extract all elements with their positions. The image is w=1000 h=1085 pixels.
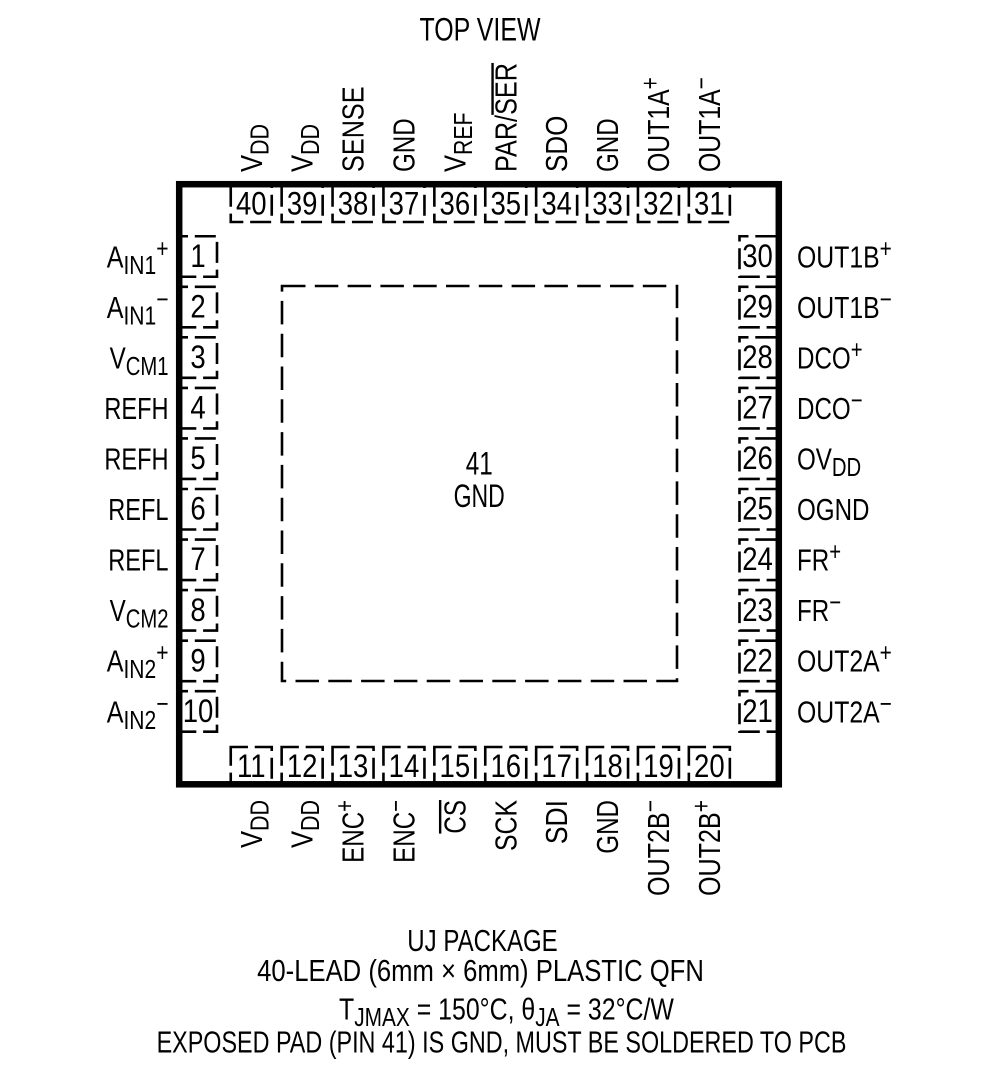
svg-text:19: 19 xyxy=(643,749,674,784)
svg-text:OUT2A−: OUT2A− xyxy=(797,689,892,729)
svg-text:28: 28 xyxy=(742,340,773,375)
svg-text:4: 4 xyxy=(190,391,205,426)
svg-text:12: 12 xyxy=(287,749,318,784)
svg-text:REFH: REFH xyxy=(104,391,168,426)
svg-text:21: 21 xyxy=(742,694,773,729)
svg-text:33: 33 xyxy=(592,187,623,222)
svg-text:13: 13 xyxy=(338,749,369,784)
svg-text:GND: GND xyxy=(590,800,625,854)
svg-text:1: 1 xyxy=(190,239,205,274)
svg-text:REFL: REFL xyxy=(108,542,168,577)
svg-text:23: 23 xyxy=(742,593,773,628)
svg-text:OUT2B−: OUT2B− xyxy=(637,800,676,896)
svg-text:2: 2 xyxy=(190,290,205,325)
svg-text:REFL: REFL xyxy=(108,492,168,527)
svg-text:SDI: SDI xyxy=(540,800,574,844)
svg-text:26: 26 xyxy=(742,441,773,476)
svg-text:5: 5 xyxy=(190,441,205,476)
svg-text:16: 16 xyxy=(490,749,521,784)
svg-text:EXPOSED PAD (PIN 41) IS GND, M: EXPOSED PAD (PIN 41) IS GND, MUST BE SOL… xyxy=(157,1024,847,1059)
svg-text:40: 40 xyxy=(236,187,267,222)
svg-text:9: 9 xyxy=(190,643,205,678)
svg-text:GND: GND xyxy=(454,478,505,514)
svg-text:35: 35 xyxy=(490,187,521,222)
svg-text:OUT1A−: OUT1A− xyxy=(687,77,727,172)
svg-text:20: 20 xyxy=(694,749,725,784)
svg-text:11: 11 xyxy=(237,749,266,784)
svg-text:17: 17 xyxy=(541,749,572,784)
svg-text:GND: GND xyxy=(387,118,422,172)
svg-text:TOP VIEW: TOP VIEW xyxy=(420,13,541,49)
svg-text:SDO: SDO xyxy=(540,116,575,172)
svg-text:14: 14 xyxy=(389,749,420,784)
svg-text:OGND: OGND xyxy=(797,492,869,527)
svg-text:38: 38 xyxy=(338,187,369,222)
svg-text:36: 36 xyxy=(440,187,471,222)
svg-text:10: 10 xyxy=(183,694,214,729)
svg-text:CS: CS xyxy=(437,800,472,834)
svg-text:REFH: REFH xyxy=(104,441,168,476)
svg-text:8: 8 xyxy=(190,593,205,628)
svg-text:40-LEAD (6mm × 6mm) PLASTIC QF: 40-LEAD (6mm × 6mm) PLASTIC QFN xyxy=(257,954,704,989)
svg-text:27: 27 xyxy=(742,391,773,426)
svg-text:31: 31 xyxy=(694,187,725,222)
svg-text:UJ PACKAGE: UJ PACKAGE xyxy=(407,923,557,958)
svg-text:18: 18 xyxy=(592,749,623,784)
svg-text:7: 7 xyxy=(190,542,205,577)
svg-text:24: 24 xyxy=(742,542,773,577)
svg-text:32: 32 xyxy=(643,187,674,222)
svg-text:41: 41 xyxy=(466,446,493,482)
svg-text:3: 3 xyxy=(190,340,205,375)
svg-text:37: 37 xyxy=(389,187,420,222)
svg-text:39: 39 xyxy=(287,187,318,222)
svg-text:OUT2B+: OUT2B+ xyxy=(688,800,727,896)
svg-text:OUT1B−: OUT1B− xyxy=(797,285,892,325)
svg-text:GND: GND xyxy=(590,118,625,172)
svg-text:6: 6 xyxy=(190,492,205,527)
svg-text:15: 15 xyxy=(440,749,471,784)
svg-text:25: 25 xyxy=(742,492,773,527)
svg-text:OUT2A+: OUT2A+ xyxy=(797,639,892,679)
svg-text:SCK: SCK xyxy=(489,800,523,851)
svg-text:30: 30 xyxy=(742,239,773,274)
svg-text:SENSE: SENSE xyxy=(335,86,370,172)
svg-text:34: 34 xyxy=(541,187,572,222)
svg-text:OUT1B+: OUT1B+ xyxy=(797,234,892,274)
svg-text:29: 29 xyxy=(742,290,773,325)
svg-text:22: 22 xyxy=(742,643,773,678)
svg-text:OUT1A+: OUT1A+ xyxy=(636,77,676,172)
